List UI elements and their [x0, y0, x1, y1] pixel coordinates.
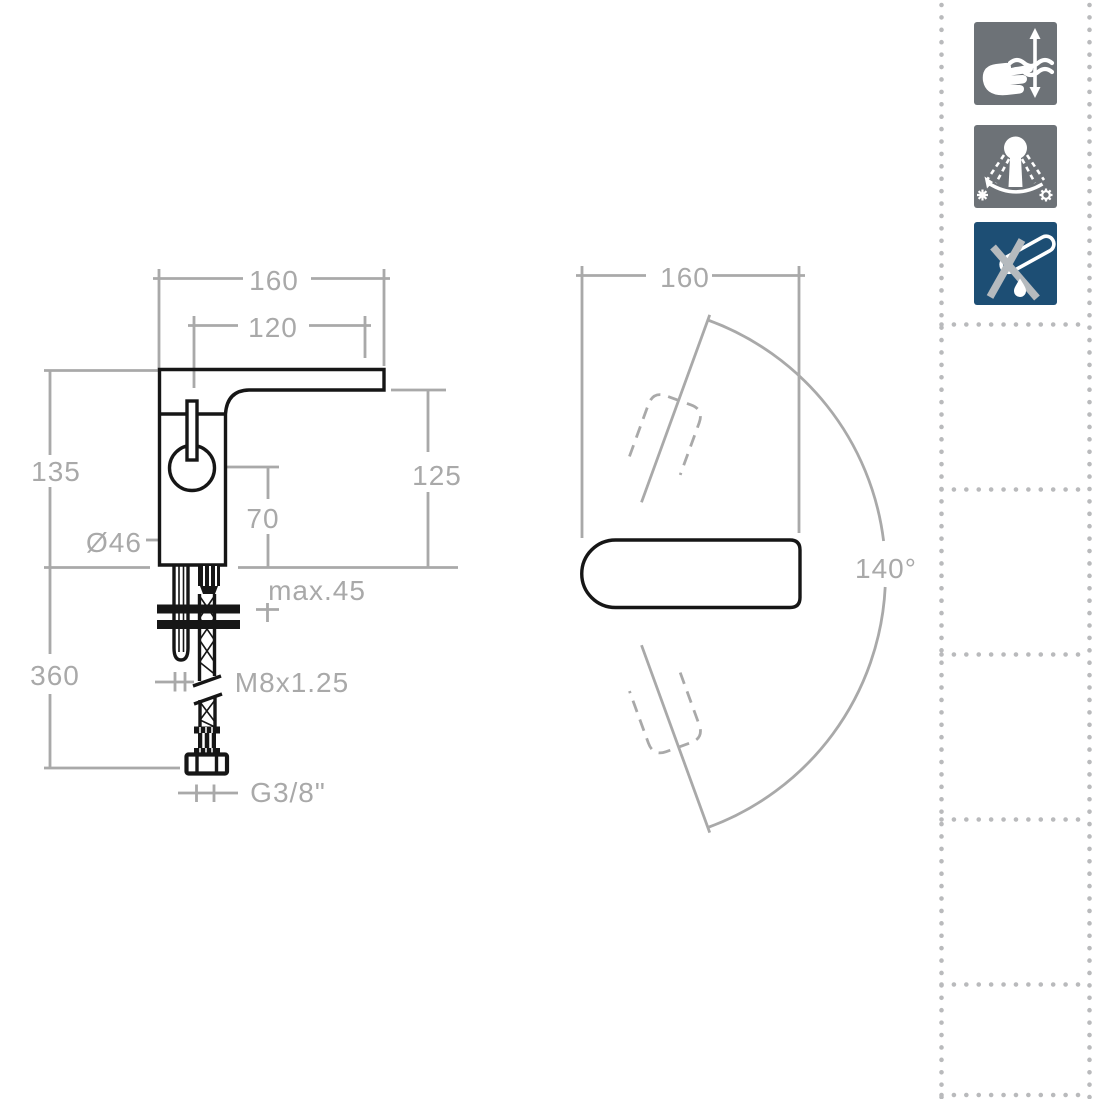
mounting-flange-upper	[157, 605, 240, 614]
dim-label-stud-thread: M8x1.25	[235, 667, 349, 698]
dim-label-under-counter: 360	[30, 660, 80, 691]
cold-symbol-left	[977, 190, 988, 201]
dim-label-body-height: 135	[31, 456, 81, 487]
dim-label-spout-height: 125	[412, 460, 462, 491]
no-pop-up-waste-icon	[974, 222, 1057, 305]
lever-head	[1004, 137, 1027, 160]
dim-label-deck-thickness: max.45	[268, 575, 366, 606]
hose-nut	[187, 755, 228, 774]
dim-label-total-width: 160	[249, 265, 299, 296]
dim-label-spout-width: 120	[248, 312, 298, 343]
dim-label-hose-thread: G3/8"	[250, 777, 326, 808]
technical-drawing-page: 160 120 135 125 70 Ø46 max.45 360 M8x1.2…	[0, 0, 1099, 1099]
lever-stem	[1009, 158, 1023, 187]
dim-label-swivel-angle: 140°	[855, 553, 917, 584]
flow-adjustment-icon	[974, 22, 1057, 105]
dim-label-axis-height: 70	[246, 503, 279, 534]
feature-icons	[974, 22, 1057, 305]
lever-handle	[187, 401, 197, 460]
mounting-flange-lower	[157, 620, 240, 629]
dim-label-top-width: 160	[660, 262, 710, 293]
faucet-spec-drawing: 160 120 135 125 70 Ø46 max.45 360 M8x1.2…	[0, 0, 1099, 1099]
dim-label-body-diameter: Ø46	[86, 527, 142, 558]
page-background	[0, 0, 1099, 1099]
swivel-cold-range-icon	[974, 125, 1057, 208]
